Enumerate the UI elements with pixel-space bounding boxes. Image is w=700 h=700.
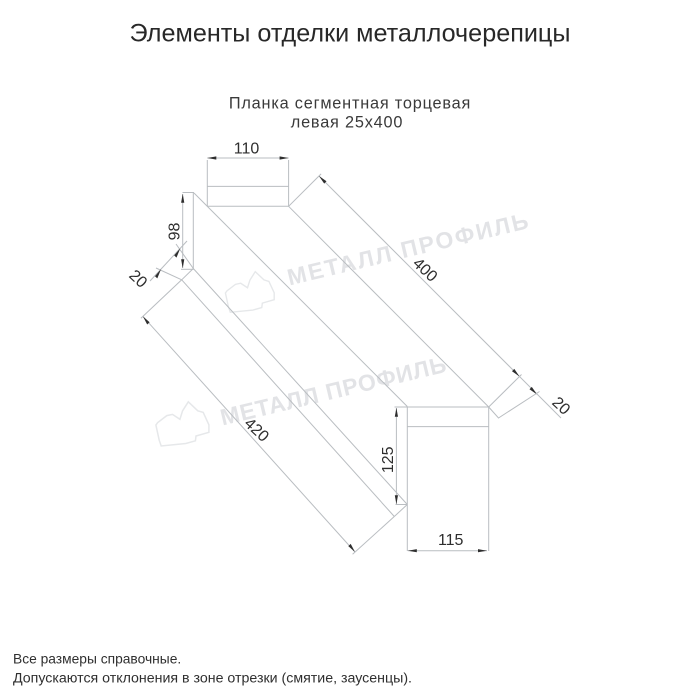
svg-text:Допускаются отклонения в зоне: Допускаются отклонения в зоне отрезки (с…	[13, 671, 412, 687]
svg-text:Планка сегментная торцевая: Планка сегментная торцевая	[229, 95, 471, 113]
svg-text:Элементы отделки металлочерепи: Элементы отделки металлочерепицы	[130, 20, 571, 48]
svg-text:98: 98	[167, 223, 184, 241]
svg-text:115: 115	[438, 532, 464, 549]
svg-text:левая 25х400: левая 25х400	[291, 114, 403, 132]
svg-text:110: 110	[234, 141, 260, 158]
svg-text:125: 125	[380, 446, 397, 473]
svg-text:Все размеры справочные.: Все размеры справочные.	[13, 652, 181, 667]
